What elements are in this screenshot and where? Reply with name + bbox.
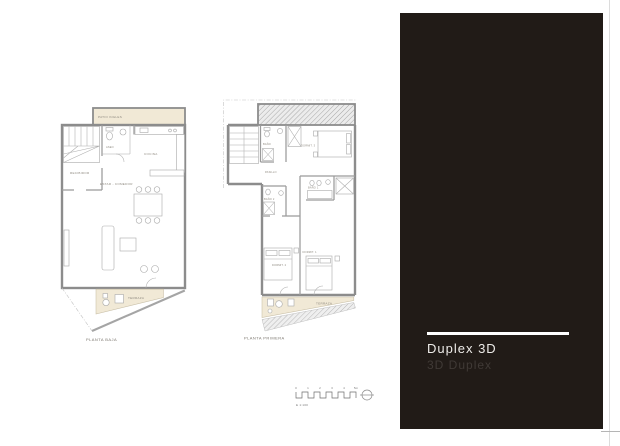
title-underline [427, 332, 569, 335]
panel-subtitle: 3D Duplex [427, 358, 492, 372]
scale-label: E 1:100 [296, 403, 308, 407]
plan-caption-primera: PLANTA PRIMERA [244, 336, 285, 341]
scale-reference-icon [360, 390, 374, 400]
roof-hatch-area [258, 104, 355, 125]
room-label-banyo: BAÑO [263, 141, 271, 146]
room-label-recibidor: RECIBIDOR [70, 171, 90, 175]
scale-tick-4: 4 [343, 386, 345, 390]
room-label-dormit1: DORMIT. 1 [303, 250, 318, 254]
dining-table [134, 187, 162, 224]
info-panel: Duplex 3D 3D Duplex [400, 13, 603, 429]
room-label-patio: PATIO INGLES [98, 115, 122, 119]
site-edge-dashed [62, 288, 92, 331]
wc-fixtures [102, 125, 130, 162]
scale-tick-2: 2 [319, 386, 321, 390]
sofa-set [64, 226, 159, 273]
plan-caption-baja: PLANTA BAJA [86, 337, 117, 342]
bed-dorm1 [306, 256, 340, 290]
bathroom2-fixtures [264, 189, 284, 214]
scale-bar: 0 1 2 3 4 5m E 1:100 [288, 383, 388, 409]
room-label-terraza: TERRAZA [128, 296, 145, 300]
room-label-dormit3: DORMIT. 3 [301, 144, 316, 148]
wardrobe-hall [336, 178, 354, 194]
scale-tick-5: 5m [354, 386, 359, 390]
bed-dorm3 [314, 131, 352, 157]
wardrobe-dorm3 [288, 127, 301, 147]
scale-meander [296, 392, 356, 398]
drawing-sheet: PATIO INGLES ASEO RECIBIDOR [0, 0, 620, 446]
panel-title: Duplex 3D [427, 341, 497, 356]
scale-tick-0: 0 [295, 386, 297, 390]
scale-tick-1: 1 [307, 386, 309, 390]
room-label-estar: ESTAR - COMEDOR [100, 182, 133, 186]
stairs [230, 127, 259, 164]
stairs [64, 127, 100, 163]
room-label-aseo: ASEO [106, 145, 114, 149]
floor-plan-planta-primera: BAÑO DORMIT. 3 PASILLO BAÑO 2 [222, 98, 392, 348]
page-edge-horizontal [601, 431, 620, 432]
room-label-pasillo: PASILLO [265, 170, 277, 174]
floor-plan-planta-baja: PATIO INGLES ASEO RECIBIDOR [56, 98, 196, 348]
room-label-cocina: COCINA [144, 152, 158, 156]
room-label-dormit2: DORMIT. 2 [272, 263, 287, 267]
page-edge-vertical [609, 0, 610, 446]
room-label-banyo2: BAÑO 2 [264, 196, 275, 201]
kitchen-counter [135, 127, 185, 177]
room-label-terraza-p1: TERRAZA [316, 302, 333, 306]
scale-tick-3: 3 [331, 386, 333, 390]
